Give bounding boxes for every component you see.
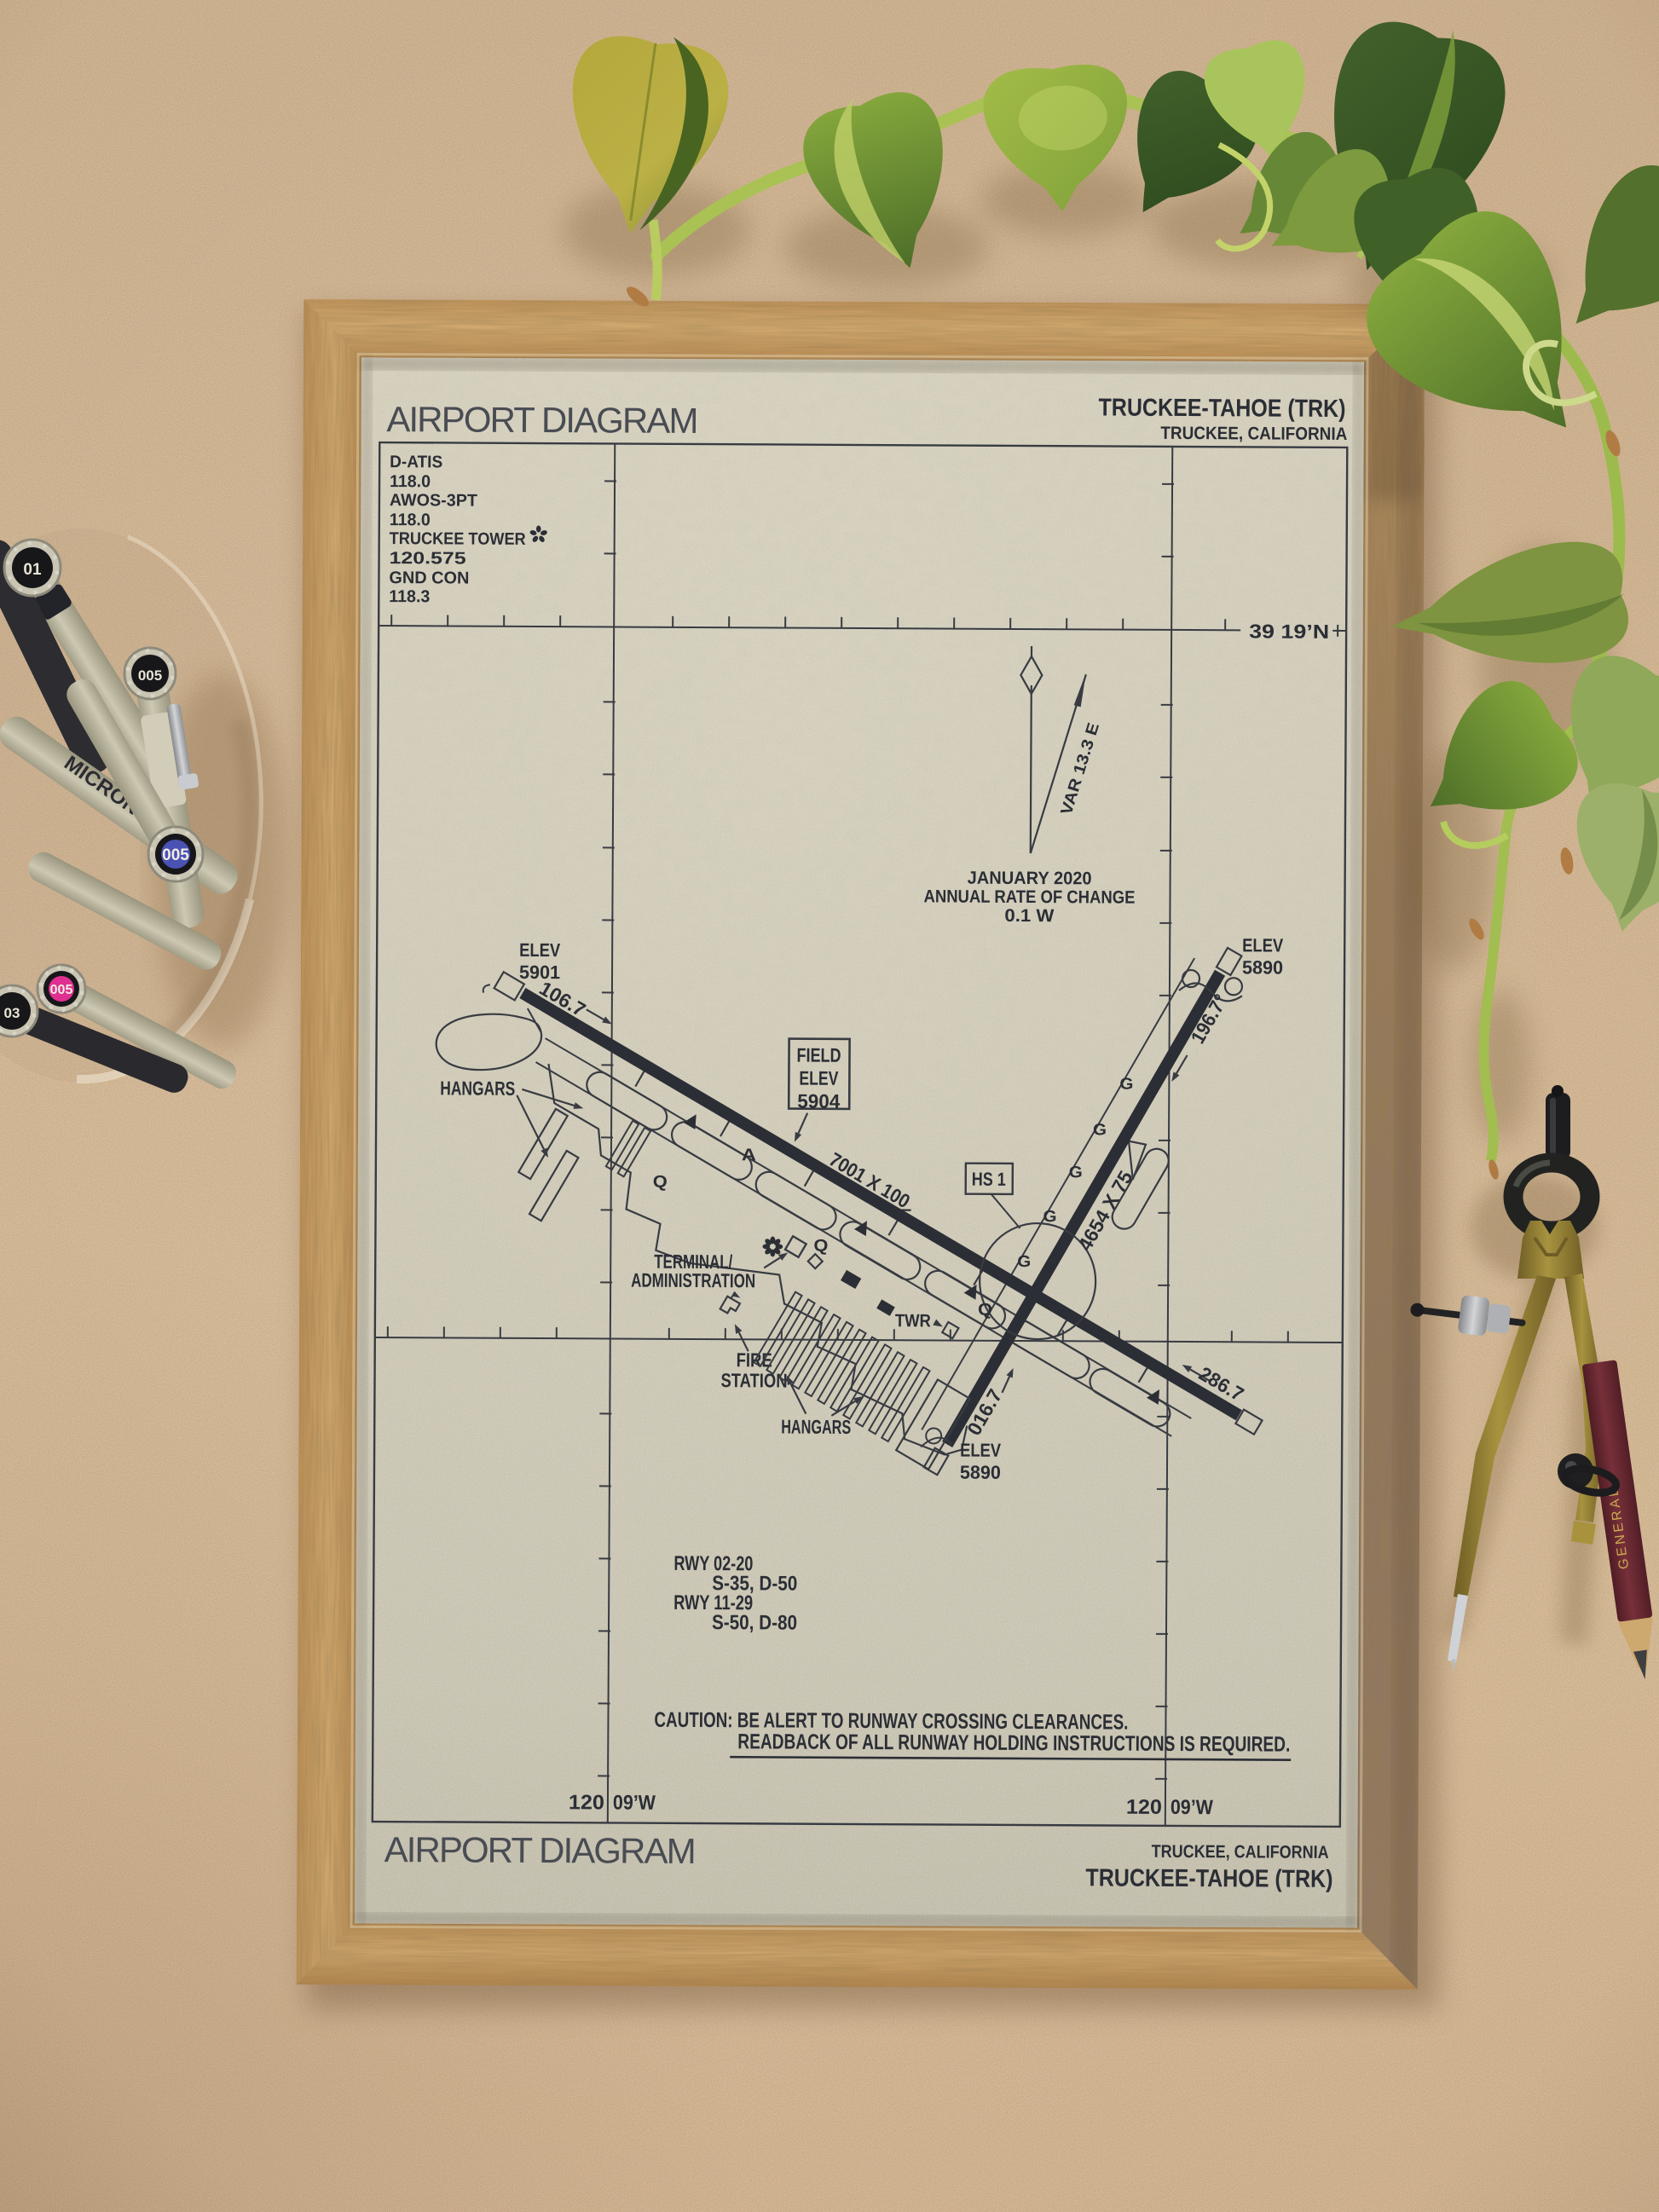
svg-text:09’W: 09’W	[613, 1791, 656, 1814]
svg-text:S-50, D-80: S-50, D-80	[712, 1611, 797, 1635]
svg-text:HS 1: HS 1	[972, 1169, 1006, 1190]
svg-text:118.0: 118.0	[390, 511, 431, 529]
svg-text:HANGARS: HANGARS	[781, 1416, 851, 1438]
svg-text:ELEV: ELEV	[799, 1067, 839, 1089]
svg-text:ADMINISTRATION: ADMINISTRATION	[631, 1269, 755, 1292]
svg-text:TRUCKEE, CALIFORNIA: TRUCKEE, CALIFORNIA	[1160, 424, 1347, 444]
svg-text:ELEV: ELEV	[960, 1440, 1001, 1461]
svg-text:5890: 5890	[960, 1462, 1001, 1483]
svg-text:118.3: 118.3	[389, 587, 430, 606]
svg-text:STATION: STATION	[720, 1369, 787, 1391]
svg-text:ELEV: ELEV	[519, 939, 560, 961]
svg-text:120: 120	[1126, 1796, 1162, 1819]
svg-text:READBACK OF ALL RUNWAY HOLDING: READBACK OF ALL RUNWAY HOLDING INSTRUCTI…	[737, 1730, 1290, 1756]
svg-text:Q: Q	[653, 1173, 668, 1192]
svg-text:D-ATIS: D-ATIS	[390, 453, 442, 471]
svg-text:HANGARS: HANGARS	[440, 1077, 515, 1099]
svg-text:005: 005	[50, 983, 73, 997]
svg-text:005: 005	[138, 667, 162, 684]
svg-text:FIRE: FIRE	[737, 1349, 772, 1371]
svg-text:ELEV: ELEV	[1242, 934, 1283, 956]
svg-text:G: G	[1043, 1208, 1056, 1226]
svg-text:118.0: 118.0	[390, 472, 431, 491]
svg-text:TRUCKEE-TAHOE (TRK): TRUCKEE-TAHOE (TRK)	[1098, 394, 1345, 423]
svg-text:120: 120	[569, 1791, 604, 1814]
svg-text:5904: 5904	[797, 1090, 840, 1112]
svg-text:Q: Q	[813, 1237, 828, 1256]
svg-text:F: F	[899, 1206, 911, 1225]
svg-text:G: G	[1093, 1121, 1107, 1139]
svg-text:ANNUAL RATE OF CHANGE: ANNUAL RATE OF CHANGE	[923, 887, 1135, 907]
svg-text:GND CON: GND CON	[389, 569, 469, 587]
svg-text:FIELD: FIELD	[796, 1044, 841, 1066]
svg-text:120.575: 120.575	[390, 549, 466, 568]
svg-text:005: 005	[162, 846, 189, 864]
svg-text:TRUCKEE-TAHOE (TRK): TRUCKEE-TAHOE (TRK)	[1085, 1864, 1332, 1893]
svg-text:G: G	[1017, 1253, 1031, 1271]
svg-text:JANUARY 2020: JANUARY 2020	[968, 869, 1092, 889]
svg-text:5890: 5890	[1242, 956, 1283, 978]
svg-text:G: G	[1119, 1076, 1133, 1094]
svg-text:AWOS-3PT: AWOS-3PT	[390, 491, 477, 511]
svg-text:AIRPORT DIAGRAM: AIRPORT DIAGRAM	[386, 399, 698, 441]
svg-text:0.1 W: 0.1 W	[1004, 906, 1054, 926]
svg-text:TRUCKEE TOWER: TRUCKEE TOWER	[390, 529, 527, 549]
svg-text:A: A	[742, 1146, 756, 1164]
svg-text:03: 03	[4, 1005, 20, 1021]
svg-text:AIRPORT DIAGRAM: AIRPORT DIAGRAM	[384, 1829, 697, 1871]
svg-text:09’W: 09’W	[1171, 1796, 1213, 1819]
svg-text:39 19’N: 39 19’N	[1249, 620, 1329, 642]
svg-text:Q: Q	[978, 1301, 992, 1320]
svg-text:01: 01	[23, 561, 42, 579]
svg-text:5901: 5901	[519, 962, 560, 983]
svg-text:TWR: TWR	[895, 1311, 931, 1331]
svg-text:TRUCKEE, CALIFORNIA: TRUCKEE, CALIFORNIA	[1152, 1842, 1329, 1863]
svg-text:G: G	[1069, 1164, 1083, 1181]
